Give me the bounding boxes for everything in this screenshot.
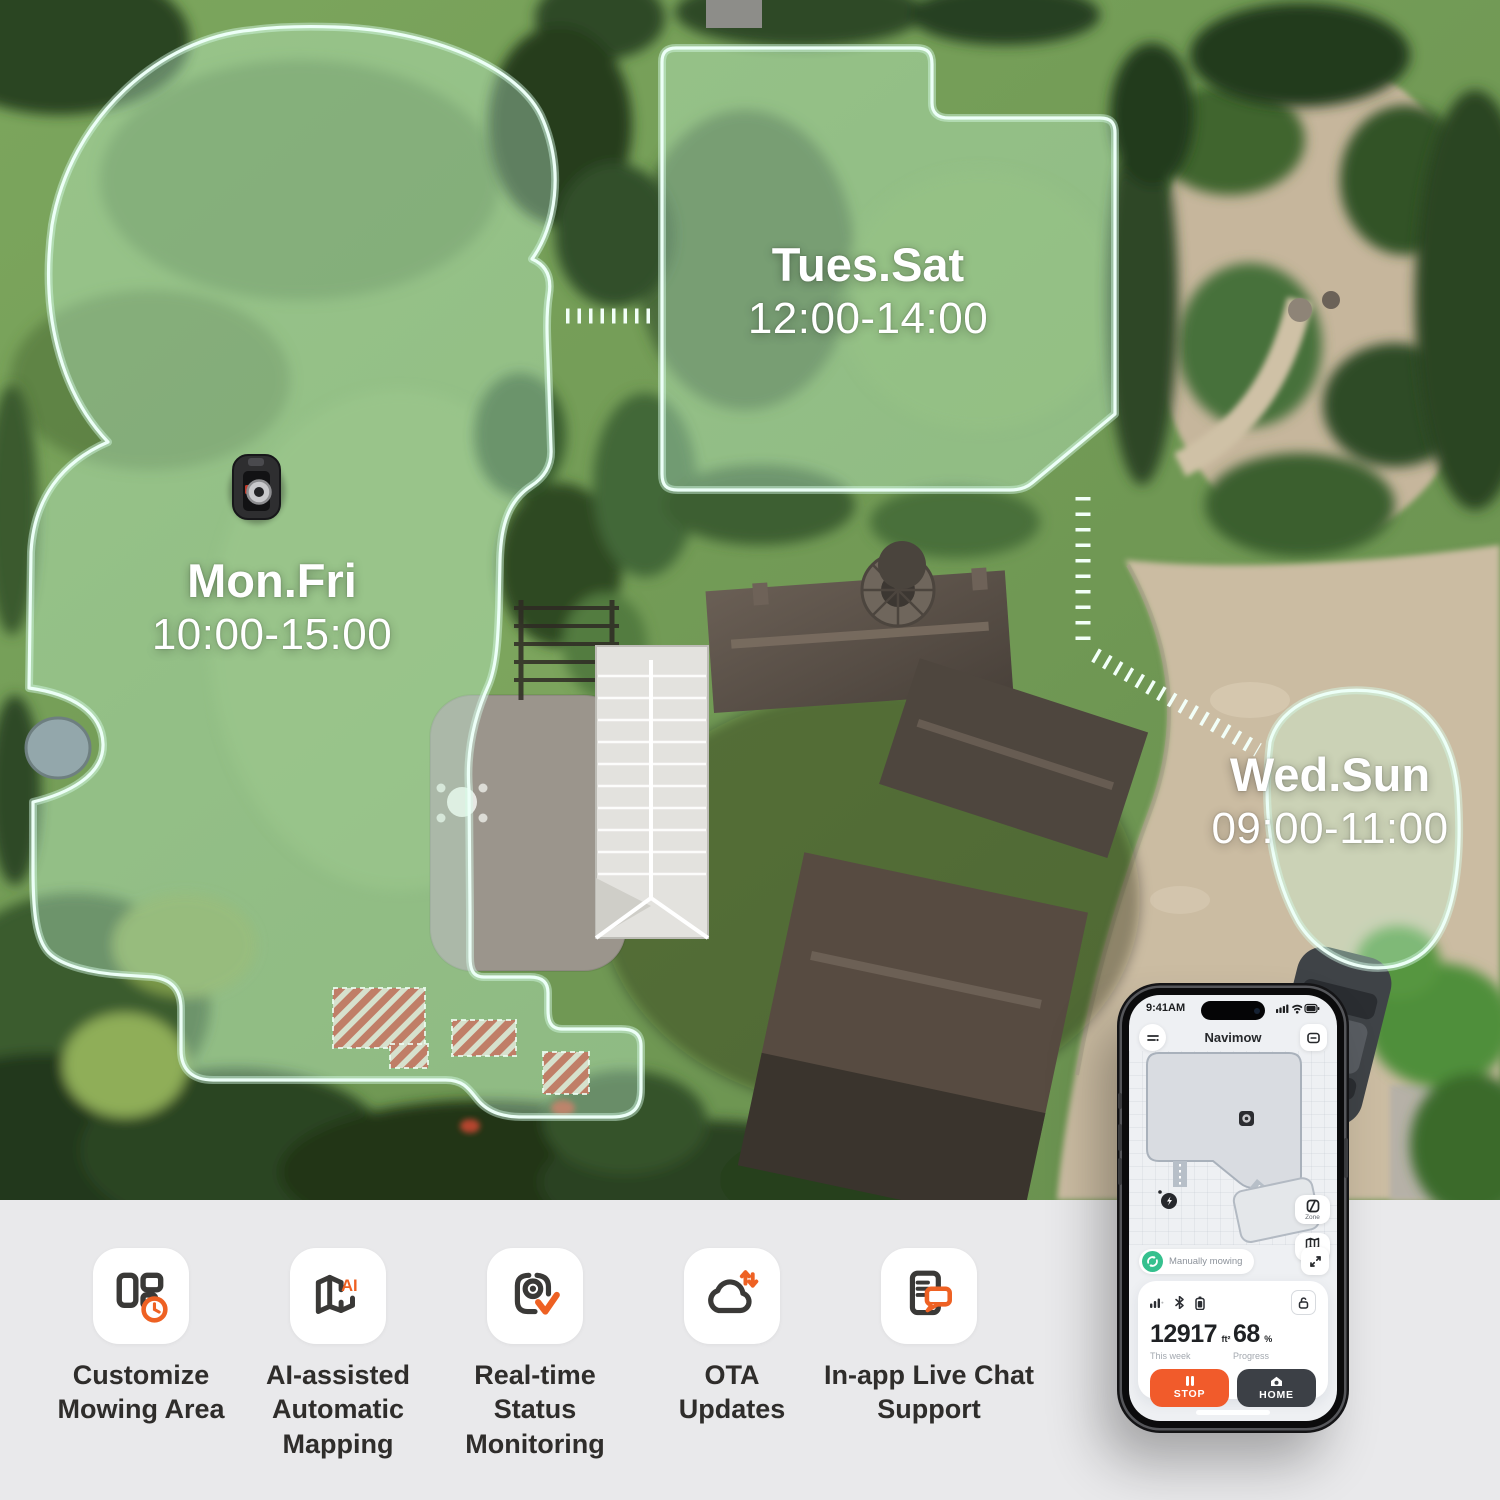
fullscreen-button[interactable]	[1301, 1247, 1329, 1275]
progress-stat: 68 % Progress	[1233, 1320, 1316, 1361]
status-icons	[1276, 1003, 1320, 1014]
marketing-image: Mon.Fri 10:00-15:00 Tues.Sat 12:00-14:00…	[0, 0, 1500, 1500]
feature-label: In-app Live Chat Support	[824, 1358, 1034, 1427]
area-unit: ft²	[1221, 1334, 1230, 1344]
feature-customize-mowing-area: Customize Mowing Area	[36, 1248, 246, 1427]
bluetooth-icon	[1175, 1296, 1184, 1309]
feature-ota-updates: OTA Updates	[627, 1248, 837, 1427]
front-camera	[1254, 1008, 1260, 1014]
volume-down-button	[1118, 1158, 1122, 1185]
app-header: Navimow	[1129, 1024, 1337, 1051]
stop-button[interactable]: STOP	[1150, 1369, 1229, 1407]
ai-map-icon: AI	[309, 1267, 367, 1325]
feature-live-chat: In-app Live Chat Support	[824, 1248, 1034, 1427]
home-button[interactable]: HOME	[1237, 1369, 1316, 1407]
zone-button-label: Zone	[1305, 1214, 1320, 1221]
feature-realtime-monitoring: Real-time Status Monitoring	[430, 1248, 640, 1461]
pause-icon	[1185, 1376, 1195, 1386]
progress-unit: %	[1264, 1334, 1272, 1344]
status-monitor-check-icon	[506, 1267, 564, 1325]
progress-value: 68	[1233, 1320, 1260, 1348]
notch	[1201, 1001, 1265, 1020]
zone-days: Tues.Sat	[772, 238, 964, 291]
zone-button[interactable]: Zone	[1295, 1195, 1330, 1224]
garden-shed	[706, 0, 762, 28]
robot-battery-icon	[1195, 1296, 1205, 1310]
pill-row: Manually mowing	[1139, 1247, 1329, 1275]
conservatory	[596, 646, 708, 938]
robot-signal-icon	[1150, 1297, 1164, 1308]
zone-time: 10:00-15:00	[72, 612, 472, 658]
sync-icon	[1142, 1251, 1163, 1272]
cloud-update-icon	[703, 1267, 761, 1325]
chat-button[interactable]	[1300, 1024, 1327, 1051]
home-indicator[interactable]	[1196, 1410, 1270, 1415]
mute-switch	[1118, 1093, 1122, 1109]
feature-ai-mapping: AI AI-assisted Automatic Mapping	[233, 1248, 443, 1461]
mowing-status-text: Manually mowing	[1169, 1256, 1242, 1267]
menu-button[interactable]	[1139, 1024, 1166, 1051]
feature-label: Real-time Status Monitoring	[430, 1358, 640, 1461]
area-value: 12917	[1150, 1320, 1217, 1348]
mowing-area-clock-icon	[112, 1267, 170, 1325]
map-dock-icon	[1158, 1190, 1177, 1209]
zone-time: 12:00-14:00	[668, 296, 1068, 342]
home-label: HOME	[1259, 1389, 1294, 1401]
app-map[interactable]: Zone 2600m²	[1129, 1051, 1337, 1245]
zone-time: 09:00-11:00	[1130, 806, 1500, 852]
feature-label: Customize Mowing Area	[36, 1358, 246, 1427]
progress-caption: Progress	[1233, 1351, 1316, 1361]
pond	[26, 718, 90, 778]
map-robot-icon	[1239, 1111, 1254, 1126]
svg-text:AI: AI	[341, 1276, 358, 1295]
robot-mower	[229, 455, 285, 524]
mowing-status-pill[interactable]: Manually mowing	[1139, 1249, 1254, 1274]
stop-label: STOP	[1174, 1388, 1206, 1400]
app-screen: 9:41AM	[1129, 995, 1337, 1421]
stats-card: 12917 ft² This week 68 % Progress	[1138, 1281, 1328, 1399]
status-time: 9:41AM	[1146, 1002, 1185, 1014]
volume-up-button	[1118, 1124, 1122, 1151]
live-chat-icon	[900, 1267, 958, 1325]
feature-label: OTA Updates	[657, 1358, 807, 1427]
app-title: Navimow	[1204, 1030, 1261, 1045]
area-caption: This week	[1150, 1351, 1233, 1361]
zone-days: Mon.Fri	[187, 554, 357, 607]
area-stat: 12917 ft² This week	[1150, 1320, 1233, 1361]
zone-days: Wed.Sun	[1230, 748, 1430, 801]
zone-schedule-label: Tues.Sat 12:00-14:00	[668, 240, 1068, 343]
home-icon	[1270, 1376, 1283, 1387]
zone-schedule-label: Mon.Fri 10:00-15:00	[72, 556, 472, 659]
zone-schedule-label: Wed.Sun 09:00-11:00	[1130, 750, 1500, 853]
feature-label: AI-assisted Automatic Mapping	[233, 1358, 443, 1461]
phone-mockup: 9:41AM	[1122, 988, 1344, 1428]
lock-button[interactable]	[1291, 1290, 1316, 1315]
power-button	[1344, 1138, 1348, 1178]
